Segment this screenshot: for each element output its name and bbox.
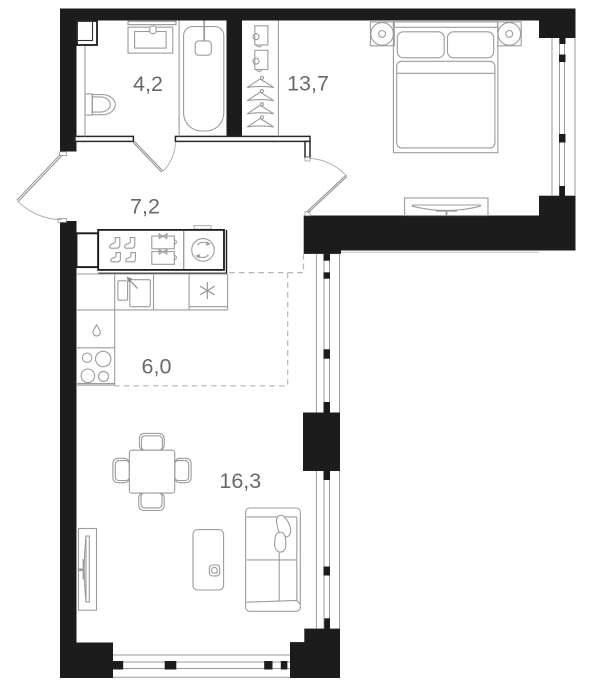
svg-text:6,0: 6,0 (142, 354, 172, 378)
svg-text:16,3: 16,3 (219, 469, 261, 493)
svg-text:4,2: 4,2 (133, 72, 163, 96)
svg-text:7,2: 7,2 (130, 195, 160, 219)
svg-text:13,7: 13,7 (287, 71, 329, 95)
